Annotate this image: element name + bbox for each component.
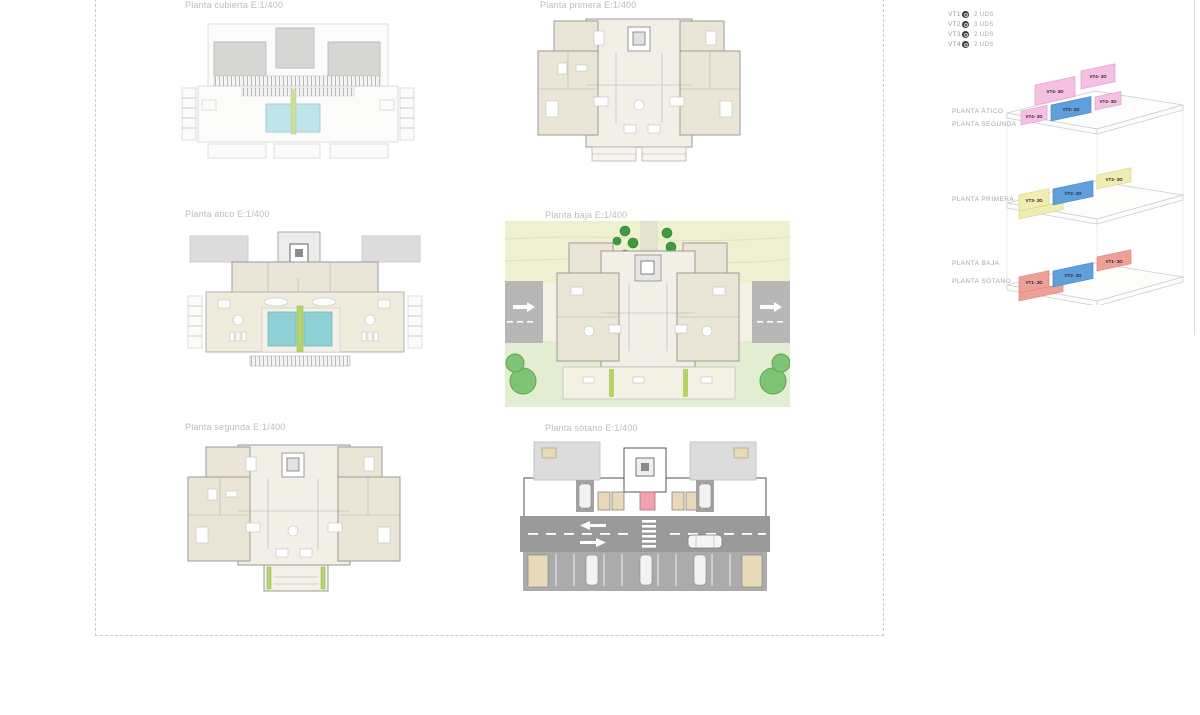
plan-title-segunda: Planta segunda E:1/400 <box>185 422 285 432</box>
stair-core <box>624 448 666 492</box>
floorplan-atico <box>178 226 432 386</box>
unit-count-icon <box>962 31 969 38</box>
unit-count-icon <box>962 11 969 18</box>
axon-tier-primera: VT3- 3D VT2- 2D VT3- 3D <box>1007 168 1183 224</box>
floorplan-sheet: { "page": { "background": "#ffffff" }, "… <box>0 0 1200 715</box>
garden-terrace <box>563 367 735 399</box>
plan-title-sotano: Planta sótano E:1/400 <box>545 423 638 433</box>
floorplan-primera <box>528 13 750 171</box>
axon-tier-atico-segunda: VT4- 3D VT4- 3D VT4- 3D VT2- 2D VT4- 3D <box>1007 64 1183 134</box>
legend-code: VT3 <box>948 31 962 38</box>
balconies <box>592 147 686 161</box>
axon-block-label: VT4- 3D <box>1099 99 1117 104</box>
stair-core <box>282 453 304 477</box>
pergola-hatch-2 <box>242 88 354 96</box>
stair-core <box>635 255 661 281</box>
elevator <box>640 492 655 510</box>
legend-count: 2 UDS <box>974 12 994 18</box>
axon-tier-baja-sotano: VT1- 3D VT2- 2D VT1- 3D <box>1007 250 1183 305</box>
parking <box>524 552 766 590</box>
legend-code: VT4 <box>948 41 962 48</box>
legend-code: VT2 <box>948 21 962 28</box>
floorplan-baja <box>505 221 790 407</box>
legend-code: VT1 <box>948 11 962 18</box>
pergola-hatch <box>214 76 380 86</box>
plan-title-cubierta: Planta cubierta E:1/400 <box>185 0 283 10</box>
legend-row-vt3: VT3 2 UDS <box>948 30 994 39</box>
axon-block-label: VT4- 3D <box>1089 74 1107 79</box>
plan-title-atico: Planta ático E:1/400 <box>185 209 270 219</box>
right-road <box>752 281 790 343</box>
legend-row-vt2: VT2 3 UDS <box>948 20 994 29</box>
legend-row-vt4: VT4 2 UDS <box>948 40 994 49</box>
floor-label-atico: PLANTA ÁTICO <box>952 108 1004 115</box>
parked-car <box>694 555 706 585</box>
axon-block-label: VT2- 2D <box>1064 191 1082 196</box>
parked-car <box>586 555 598 585</box>
axon-block-label: VT4- 3D <box>1025 114 1043 119</box>
floorplan-cubierta <box>178 16 418 166</box>
storage-rooms <box>598 492 698 510</box>
plan-title-primera: Planta primera E:1/400 <box>540 0 636 10</box>
legend-count: 3 UDS <box>974 22 994 28</box>
exploded-axonometric-diagram: VT4- 3D VT4- 3D VT4- 3D VT2- 2D VT4- 3D … <box>1005 55 1200 305</box>
plan-title-baja: Planta baja E:1/400 <box>545 210 627 220</box>
floorplan-sotano <box>520 436 770 596</box>
floor-label-baja: PLANTA BAJA <box>952 260 999 267</box>
floorplan-segunda <box>172 437 420 597</box>
road <box>520 516 770 552</box>
legend-row-vt1: VT1 2 UDS <box>948 10 994 19</box>
axon-block-label: VT2- 2D <box>1064 273 1082 278</box>
axon-block-label: VT2- 2D <box>1062 107 1080 112</box>
car <box>688 535 722 548</box>
left-road <box>505 281 543 343</box>
unit-count-icon <box>962 41 969 48</box>
legend-count: 2 UDS <box>974 42 994 48</box>
floor-label-sotano: PLANTA SÓTANO <box>952 278 1011 285</box>
axon-block-label: VT1- 3D <box>1105 259 1123 264</box>
unit-type-legend: VT1 2 UDS VT2 3 UDS VT3 2 UDS VT4 2 UDS <box>948 10 994 50</box>
stair-core <box>628 27 650 51</box>
pool-area <box>262 306 340 352</box>
penthouse-rooms <box>232 262 378 292</box>
axon-block-label: VT3- 3D <box>1105 177 1123 182</box>
terrace-extension <box>264 565 328 591</box>
unit-count-icon <box>962 21 969 28</box>
parked-car <box>640 555 652 585</box>
axon-block-label: VT4- 3D <box>1046 89 1064 94</box>
green-spine <box>291 90 296 134</box>
entry-path <box>641 221 657 251</box>
legend-count: 2 UDS <box>974 32 994 38</box>
front-railing <box>250 356 350 366</box>
axon-block-label: VT3- 3D <box>1025 198 1043 203</box>
axon-block-label: VT1- 3D <box>1025 280 1043 285</box>
